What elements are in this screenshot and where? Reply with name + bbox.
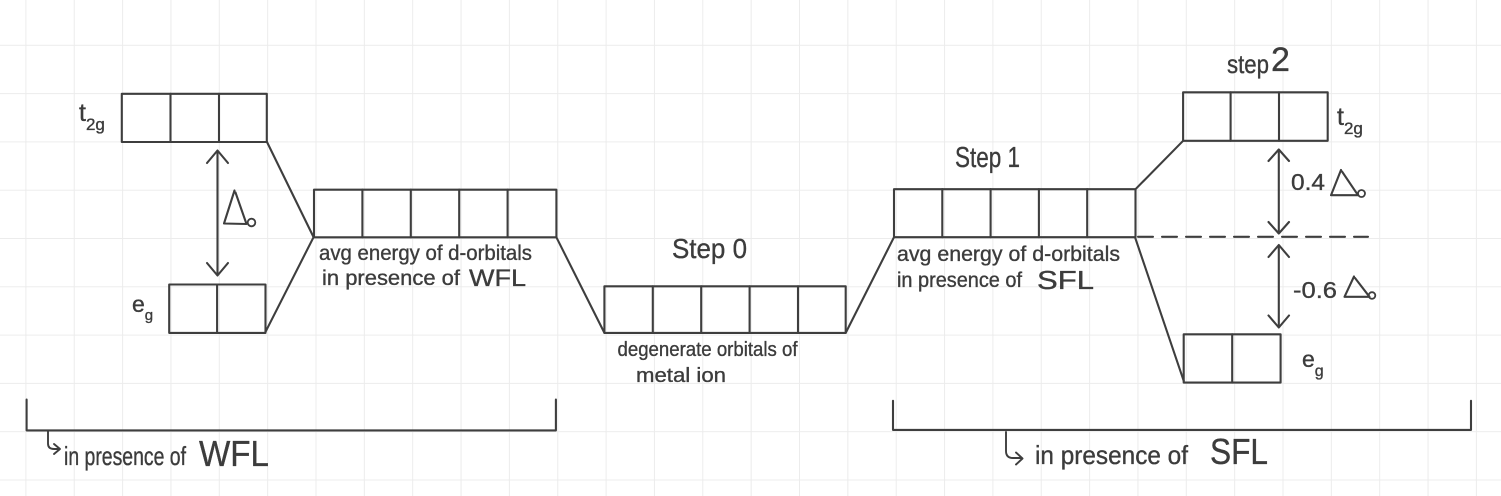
svg-text:avg energy of d-orbitals: avg energy of d-orbitals	[319, 242, 532, 265]
svg-text:metal ion: metal ion	[636, 365, 726, 387]
svg-text:in presence ofSFL: in presence ofSFL	[897, 265, 1094, 295]
svg-text:Step 0: Step 0	[672, 233, 747, 264]
svg-text:Step 1: Step 1	[955, 142, 1020, 174]
svg-text:avg energy of d-orbitals: avg energy of d-orbitals	[897, 243, 1120, 266]
svg-text:in presence ofWFL: in presence ofWFL	[322, 265, 526, 292]
svg-text:-0.6: -0.6	[1293, 277, 1337, 303]
svg-text:0.4: 0.4	[1291, 169, 1325, 195]
svg-text:degenerate orbitals of: degenerate orbitals of	[618, 339, 798, 361]
